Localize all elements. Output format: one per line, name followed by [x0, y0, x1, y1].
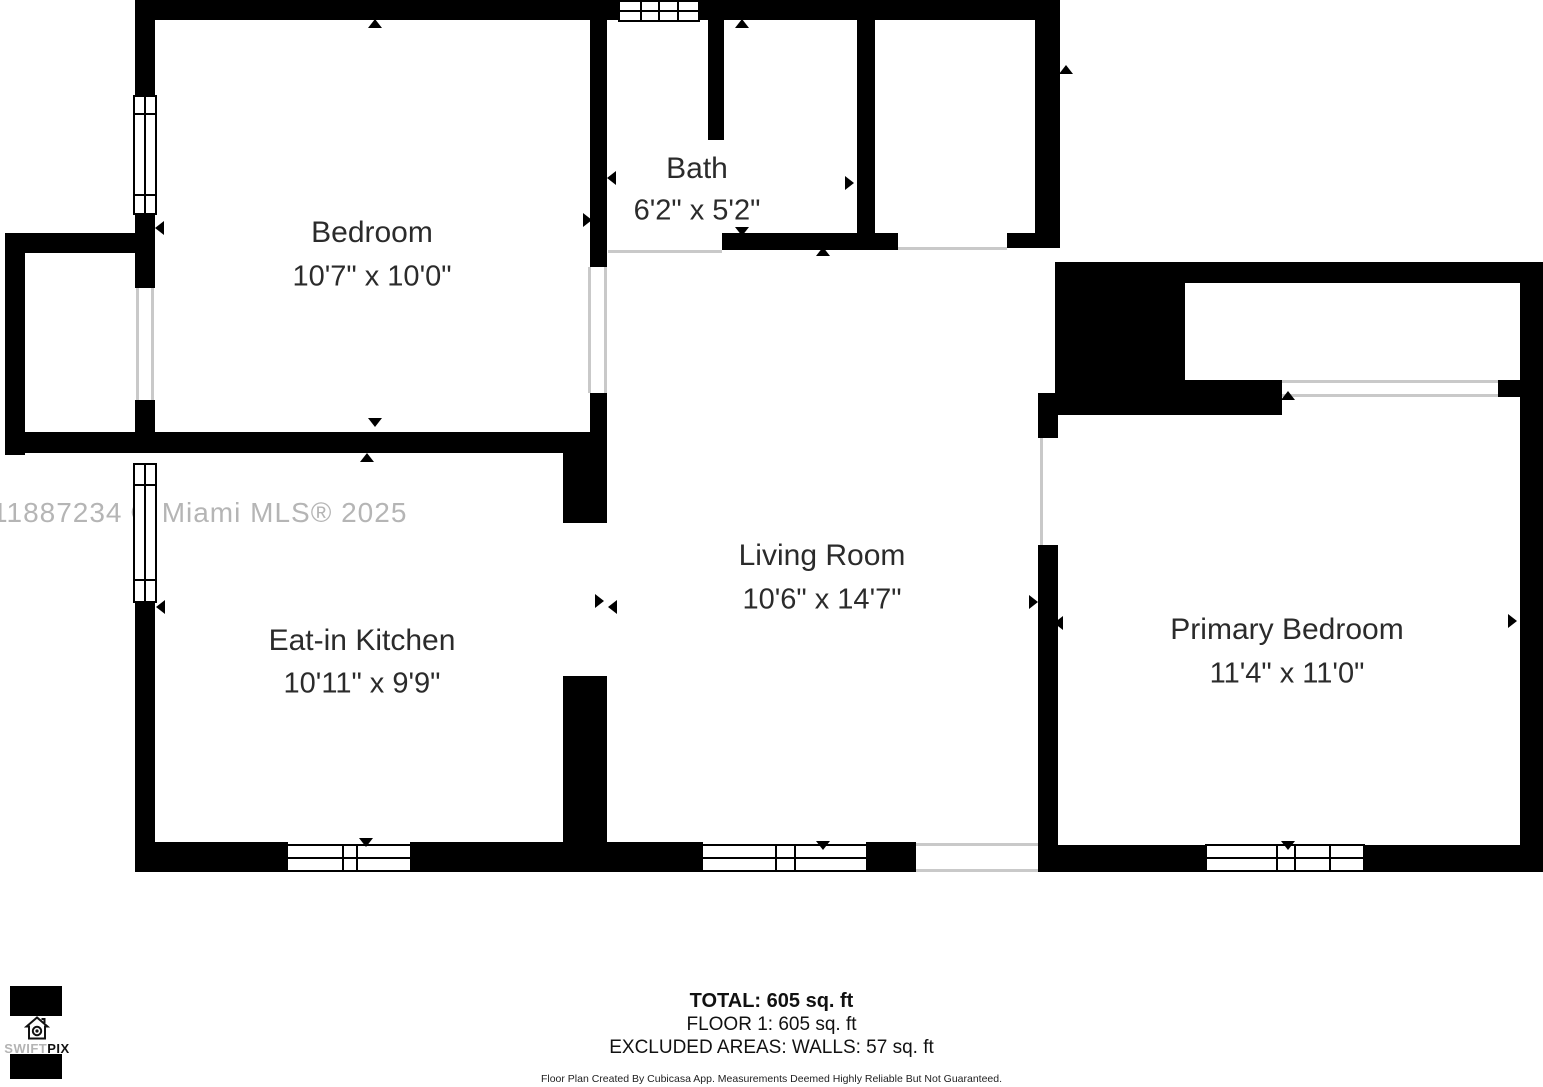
house-camera-icon [24, 1016, 50, 1040]
door-opening-line [1282, 394, 1498, 397]
wall-segment [1038, 415, 1058, 438]
wall-segment [700, 0, 1060, 20]
window [133, 463, 157, 603]
door-opening-line [916, 869, 1038, 872]
wall-segment [1038, 545, 1058, 845]
wall-segment [5, 233, 25, 455]
wall-segment [708, 20, 724, 140]
wall-segment [1007, 233, 1035, 248]
door-direction-arrow [607, 171, 616, 185]
door-opening-line [1282, 380, 1498, 383]
door-opening-line [604, 267, 607, 393]
wall-segment [135, 400, 155, 432]
floor-area-text: FLOOR 1: 605 sq. ft [0, 1014, 1543, 1036]
room-label-primary-bedroom: Primary Bedroom [1170, 613, 1403, 647]
door-direction-arrow [155, 221, 164, 235]
door-direction-arrow [735, 19, 749, 28]
wall-segment [857, 12, 875, 235]
wall-segment [875, 233, 898, 248]
wall-segment [1363, 845, 1522, 872]
wall-segment [563, 452, 607, 523]
wall-segment [563, 676, 607, 842]
mls-watermark: 11887234 © Miami MLS® 2025 [0, 497, 407, 529]
door-direction-arrow [583, 213, 592, 227]
logo-block-top [10, 986, 62, 1016]
door-direction-arrow [1029, 595, 1038, 609]
wall-segment [135, 603, 155, 844]
window [286, 844, 412, 872]
wall-segment [590, 393, 607, 432]
excluded-area-text: EXCLUDED AREAS: WALLS: 57 sq. ft [0, 1037, 1543, 1059]
door-opening-line [151, 288, 154, 400]
wall-segment [5, 432, 607, 453]
room-dimensions-bath: 6'2" x 5'2" [634, 195, 761, 228]
wall-segment [1498, 380, 1522, 397]
wall-segment [1038, 393, 1282, 415]
door-direction-arrow [1054, 616, 1063, 630]
door-direction-arrow [845, 176, 854, 190]
door-direction-arrow [1281, 391, 1295, 400]
total-area-text: TOTAL: 605 sq. ft [0, 990, 1543, 1013]
room-dimensions-bedroom: 10'7" x 10'0" [292, 261, 451, 294]
wall-segment [1035, 0, 1060, 248]
wall-segment [135, 215, 155, 288]
room-label-living-room: Living Room [739, 539, 906, 573]
room-dimensions-living-room: 10'6" x 14'7" [742, 584, 901, 617]
door-opening-line [608, 250, 722, 253]
door-opening-line [1040, 438, 1043, 545]
wall-segment [1038, 845, 1207, 872]
door-direction-arrow [816, 247, 830, 256]
wall-mass [1055, 262, 1185, 397]
door-direction-arrow [1281, 841, 1295, 850]
door-direction-arrow [595, 594, 604, 608]
wall-segment [135, 20, 155, 97]
door-direction-arrow [816, 841, 830, 850]
window [701, 844, 868, 872]
room-label-bath: Bath [666, 152, 728, 186]
door-direction-arrow [359, 838, 373, 847]
floorplan-canvas: 11887234 © Miami MLS® 2025 [0, 0, 1543, 1087]
logo-block-bottom [10, 1054, 62, 1079]
wall-segment [866, 842, 916, 872]
door-opening-line [588, 267, 591, 393]
wall-segment [1520, 262, 1543, 872]
door-opening-line [136, 288, 139, 400]
window [133, 95, 157, 215]
room-label-eat-in-kitchen: Eat-in Kitchen [269, 624, 456, 658]
room-dimensions-primary-bedroom: 11'4" x 11'0" [1210, 658, 1365, 691]
room-dimensions-eat-in-kitchen: 10'11" x 9'9" [284, 668, 441, 701]
door-direction-arrow [368, 19, 382, 28]
window [618, 0, 700, 22]
door-opening-line [916, 843, 1038, 846]
room-label-bedroom: Bedroom [311, 216, 433, 250]
wall-segment [590, 20, 607, 267]
door-opening-line [898, 247, 1007, 250]
door-direction-arrow [608, 600, 617, 614]
door-direction-arrow [1059, 65, 1073, 74]
door-direction-arrow [368, 418, 382, 427]
wall-segment [135, 0, 618, 20]
wall-segment [135, 842, 288, 872]
disclaimer-text: Floor Plan Created By Cubicasa App. Meas… [0, 1073, 1543, 1085]
door-direction-arrow [156, 600, 165, 614]
door-direction-arrow [360, 453, 374, 462]
door-direction-arrow [1508, 614, 1517, 628]
door-direction-arrow [735, 227, 749, 236]
wall-segment [410, 842, 703, 872]
